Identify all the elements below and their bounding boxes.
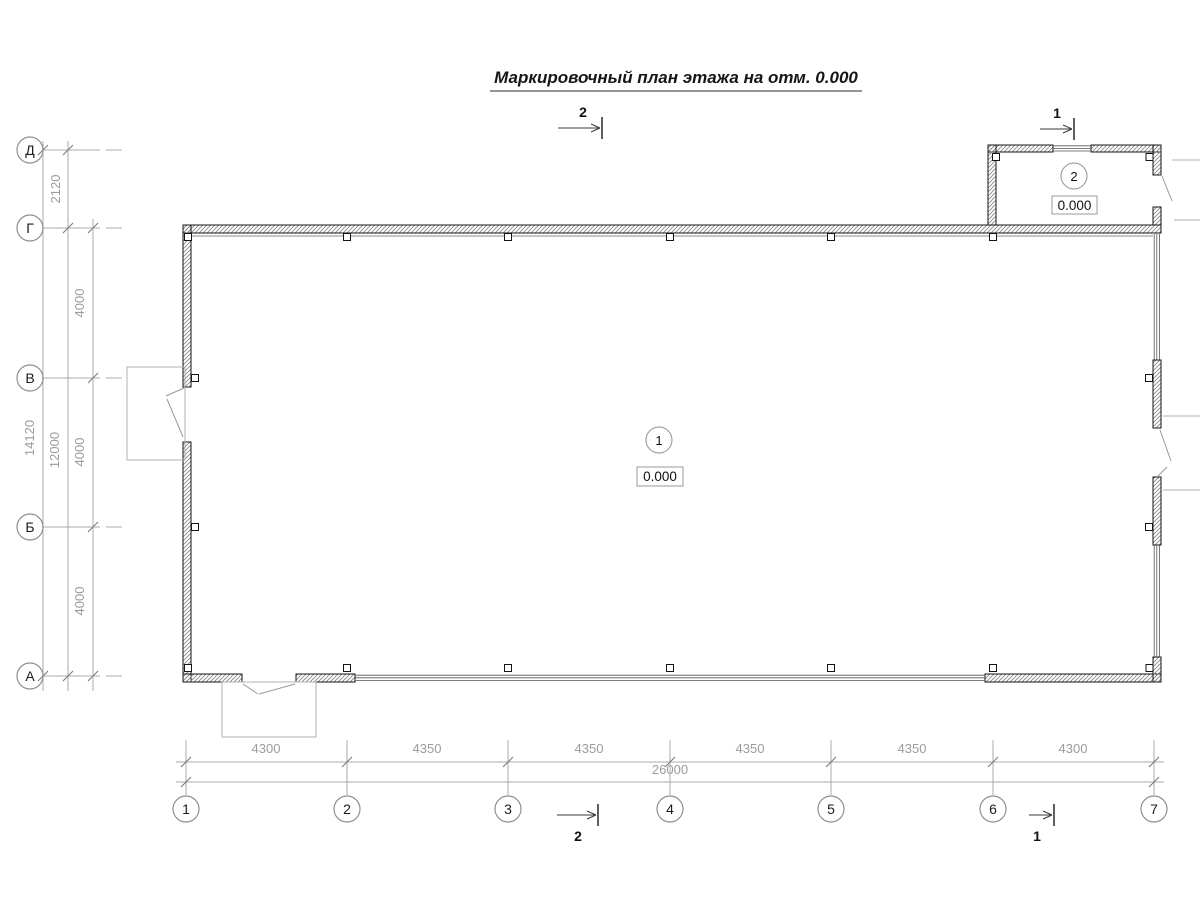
col-label-2: 2 [343,801,351,817]
wall-right-seg3 [1153,657,1161,682]
row-label-a: А [25,668,35,684]
section-mark-top-label: 2 [579,104,587,120]
wall-left-lower [183,442,191,682]
section-mark-bottom-right: 1 [1029,804,1054,844]
dim-bottom-bay-6: 4300 [1059,741,1088,756]
row-label-d: Д [25,142,35,158]
floor-plan-canvas: Маркировочный план этажа на отм. 0.000 2… [0,0,1200,900]
col-label-6: 6 [989,801,997,817]
annex-wall-right-upper [1153,145,1161,175]
wall-bottom-seg2 [296,674,355,682]
drawing-title: Маркировочный план этажа на отм. 0.000 [494,68,858,87]
dim-left-annex-bay: 2120 [48,175,63,204]
floor-plan-page: Маркировочный план этажа на отм. 0.000 2… [0,0,1200,900]
dim-bottom-bay-3: 4350 [575,741,604,756]
section-mark-bottom-right-label: 1 [1033,828,1041,844]
col-label-1: 1 [182,801,190,817]
wall-right-seg1 [1153,360,1161,428]
dim-bottom-bay-2: 4350 [413,741,442,756]
dim-left-overall: 14120 [22,420,37,456]
window-right-upper [1154,234,1159,360]
room-1-elevation: 0.000 [643,469,677,484]
dim-left-bay-3: 4000 [72,587,87,616]
dim-left-bay-2: 4000 [72,438,87,467]
porch-bottom [222,682,316,737]
row-axis-bubbles: Д Г В Б А [17,137,43,689]
dim-left-bay-1: 4000 [72,289,87,318]
wall-bottom-seg3 [985,674,1161,682]
col-label-3: 3 [504,801,512,817]
dim-bottom-overall: 26000 [652,762,688,777]
dim-bottom-bay-5: 4350 [898,741,927,756]
col-label-7: 7 [1150,801,1158,817]
porch-annex-right-cutoff [1172,160,1200,220]
window-bottom [355,675,985,680]
row-label-b: Б [25,519,34,535]
annex-wall-top-left [988,145,1053,152]
room-2-number: 2 [1070,169,1077,184]
door-swings [166,176,1172,694]
building-walls [183,145,1161,682]
section-mark-top-right: 1 [1040,105,1074,140]
row-label-g: Г [26,220,34,236]
door-right [1158,430,1171,476]
porch-left [127,367,185,460]
window-annex-top [1053,146,1091,151]
section-mark-top: 2 [558,104,602,139]
door-annex [1162,176,1172,201]
section-mark-bottom-label: 2 [574,828,582,844]
room-marker-2: 2 0.000 [1052,163,1097,214]
dim-left-sub-overall: 12000 [47,432,62,468]
col-axis-bubbles: 1 2 3 4 5 6 7 [173,796,1167,822]
wall-bottom-seg1 [183,674,242,682]
col-label-5: 5 [827,801,835,817]
room-marker-1: 1 0.000 [637,427,683,486]
room-1-number: 1 [655,433,662,448]
bottom-dimension-lines: 4300 4350 4350 4350 4350 4300 26000 [176,740,1164,795]
wall-left-upper [183,225,191,387]
exterior-porches [127,160,1200,737]
annex-wall-right-stub [1153,207,1161,225]
dim-bottom-bay-1: 4300 [252,741,281,756]
dim-bottom-bay-4: 4350 [736,741,765,756]
window-right-lower [1154,545,1159,657]
col-label-4: 4 [666,801,674,817]
wall-right-seg2 [1153,477,1161,545]
section-mark-top-right-label: 1 [1053,105,1061,121]
section-mark-bottom: 2 [557,804,598,844]
row-label-v: В [25,370,34,386]
room-2-elevation: 0.000 [1058,198,1092,213]
wall-top [183,225,1161,233]
drawing-title-block: Маркировочный план этажа на отм. 0.000 [490,68,862,91]
annex-wall-top-right [1091,145,1161,152]
door-bottom [243,684,295,694]
door-left [166,388,184,437]
